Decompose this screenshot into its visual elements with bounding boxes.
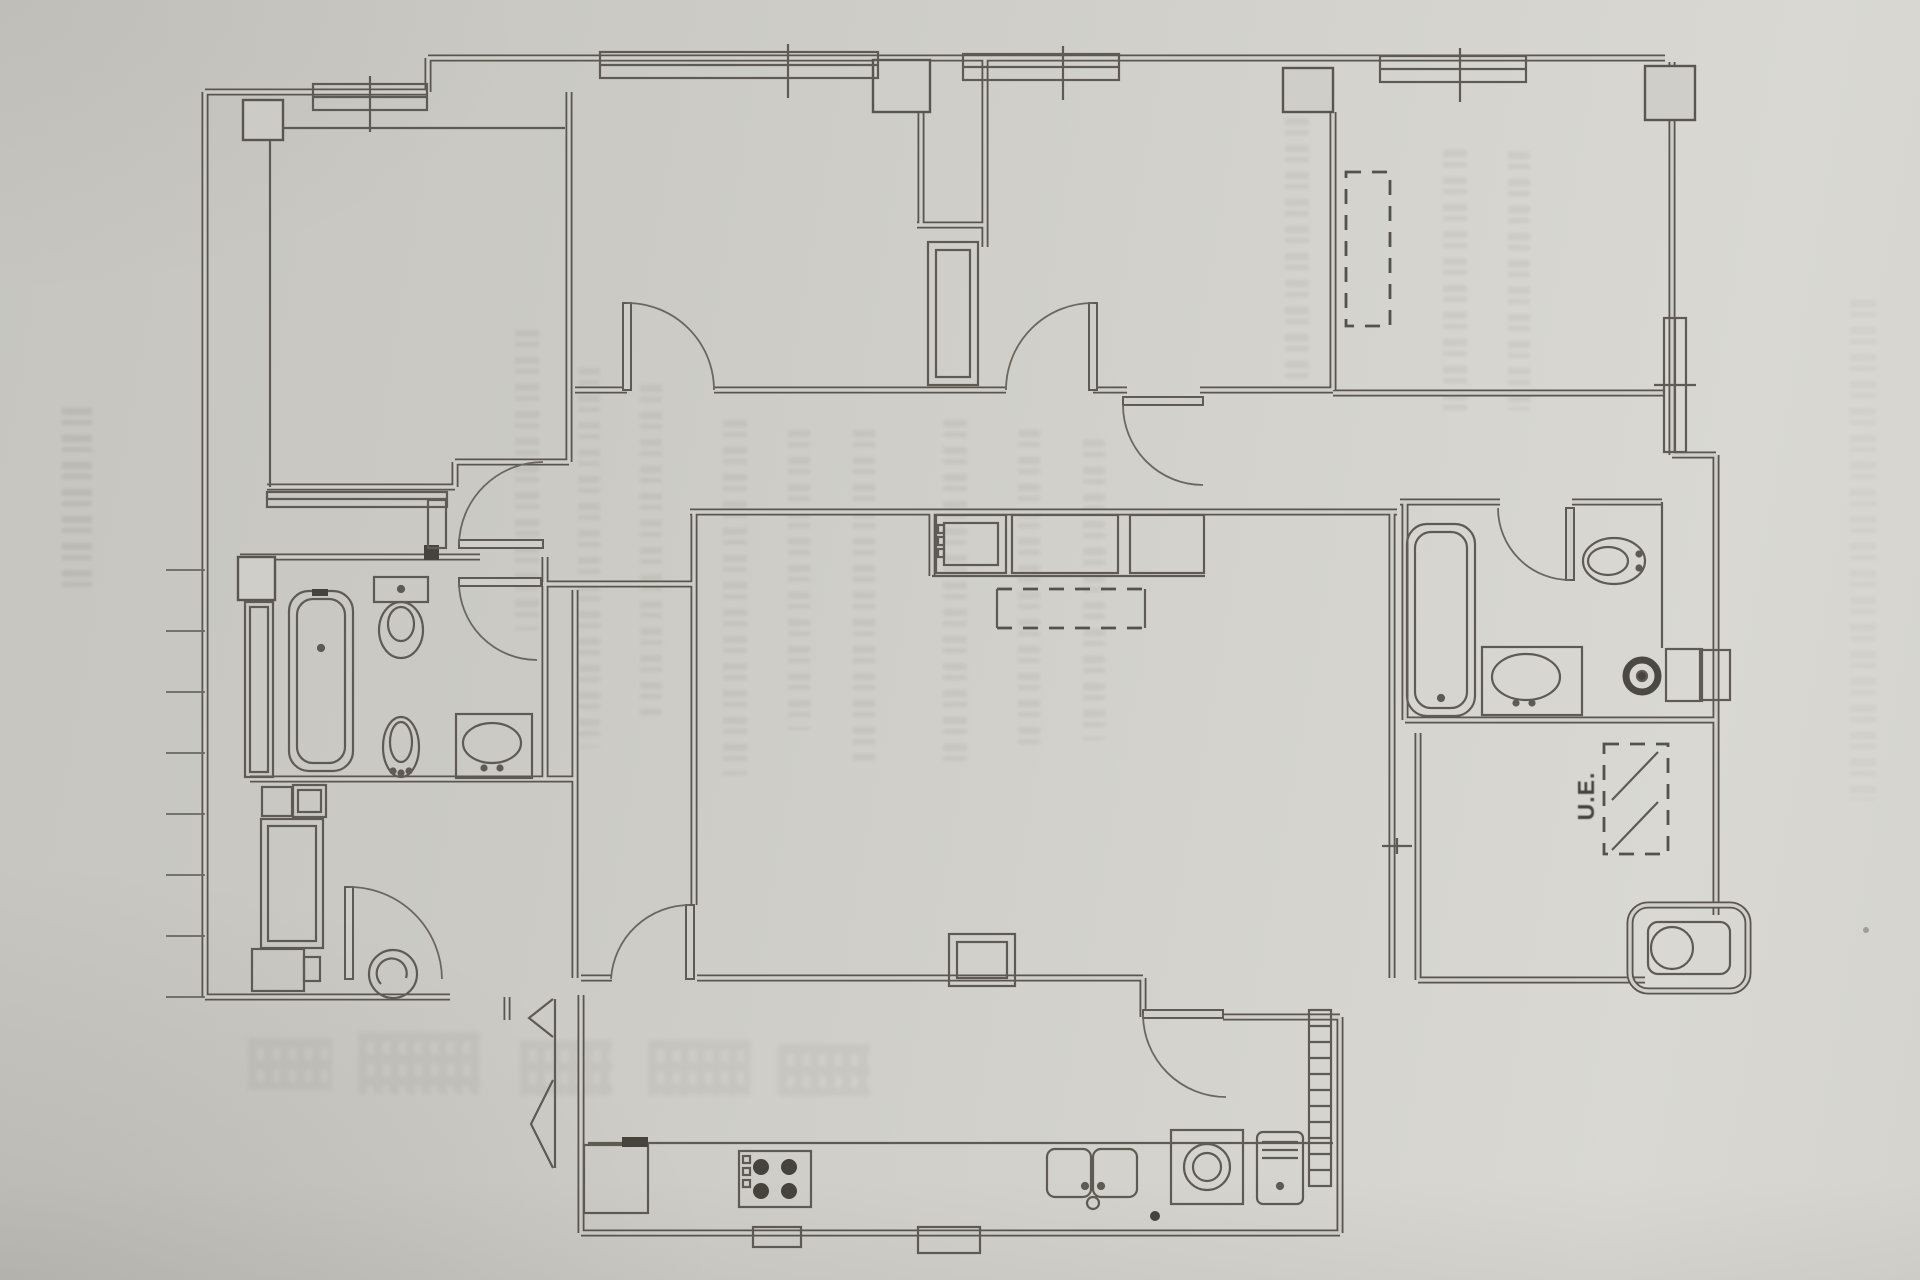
kitchen-fixtures bbox=[584, 1010, 1333, 1221]
water-heater-kitchen bbox=[1257, 1132, 1303, 1204]
door-bedroom3 bbox=[1006, 303, 1097, 390]
door-bedroom2 bbox=[623, 303, 714, 390]
door-hall-lower bbox=[459, 578, 541, 660]
corridor-closets bbox=[932, 515, 1205, 576]
terrace-room-elements bbox=[1604, 744, 1748, 991]
ladder-rack bbox=[1309, 1010, 1331, 1186]
scan-speck bbox=[1863, 927, 1869, 933]
washbasin-left bbox=[456, 714, 532, 778]
closet-band-left bbox=[267, 492, 447, 507]
bathtub-right bbox=[1407, 524, 1475, 716]
door-kitchen-west bbox=[611, 905, 694, 979]
bathroom-left-fixtures bbox=[245, 577, 532, 778]
exterior-unit-label: U.E. bbox=[1556, 766, 1616, 826]
window-bedroom1 bbox=[313, 76, 427, 132]
vent-chevrons bbox=[529, 999, 555, 1168]
table-dashed bbox=[997, 589, 1145, 628]
storage-cupboard bbox=[261, 819, 323, 948]
toilet-left bbox=[374, 577, 428, 658]
bidet-right bbox=[1583, 538, 1645, 584]
floor-plan-drawing bbox=[0, 0, 1920, 1280]
living-wall-box bbox=[949, 934, 1015, 986]
gallery-washer bbox=[262, 787, 292, 816]
window-bedroom4 bbox=[1380, 48, 1526, 102]
gallery-cabinet bbox=[252, 949, 304, 991]
corner-planter bbox=[1630, 905, 1748, 991]
door-kitchen-east bbox=[1143, 1010, 1226, 1097]
drain-dot bbox=[1150, 1211, 1160, 1221]
door-corridor bbox=[1123, 397, 1203, 485]
gallery-fixtures bbox=[252, 785, 555, 1168]
washing-machine bbox=[1171, 1130, 1243, 1204]
washbasin-right bbox=[1482, 647, 1582, 715]
structural-walls bbox=[205, 58, 1716, 1233]
wardrobe-dashed-bedroom4 bbox=[1346, 172, 1390, 326]
door-gallery bbox=[345, 887, 442, 979]
door-bathroom-right bbox=[1498, 508, 1574, 580]
window-bedroom2 bbox=[600, 44, 878, 98]
pillars bbox=[238, 60, 1695, 600]
kitchen-sink-double bbox=[1047, 1149, 1137, 1209]
bidet-left bbox=[383, 717, 419, 777]
exterior-hatch-marks bbox=[166, 570, 205, 997]
floor-plan-scan: U.E. bbox=[0, 0, 1920, 1280]
cooktop-4-burners bbox=[739, 1151, 811, 1207]
kitchen-cabinet bbox=[584, 1137, 648, 1213]
window-right-wall bbox=[1654, 318, 1696, 452]
bathtub-left bbox=[289, 591, 353, 771]
door-hall-upper bbox=[459, 462, 543, 548]
wall-cross-tick bbox=[1382, 838, 1412, 854]
